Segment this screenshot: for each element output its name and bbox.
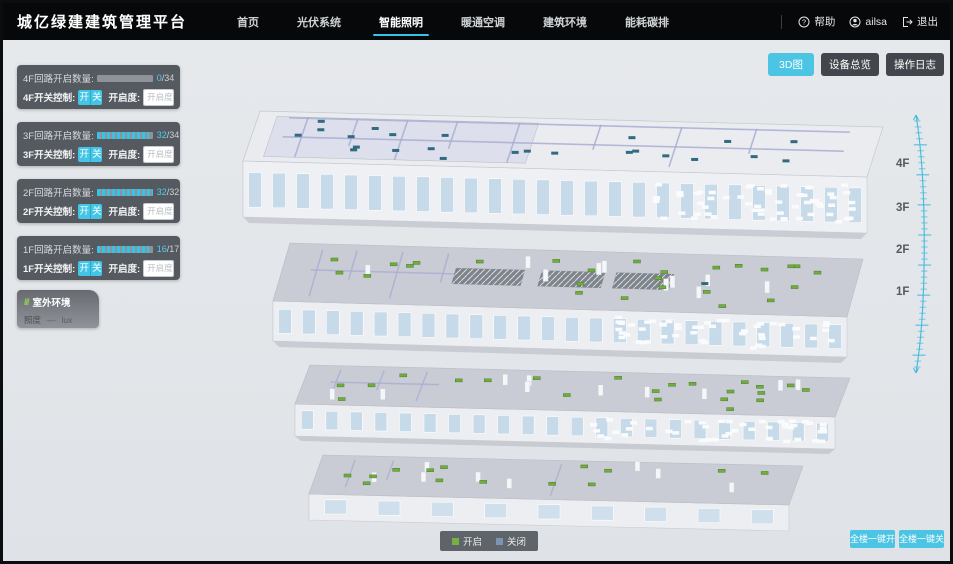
switch-on-button[interactable]: 开 [78,204,90,219]
help-button[interactable]: ? 帮助 [798,14,835,29]
header-right: ? 帮助 ailsa 退出 [781,14,950,29]
view-toolbar: 3D图 设备总览 操作日志 [768,53,944,76]
user-menu[interactable]: ailsa [849,16,887,28]
circuit-progress-bar [97,75,153,82]
circuit-count-label: 3F回路开启数量: [23,128,94,142]
circuit-count-label: 2F回路开启数量: [23,185,94,199]
legend-off-swatch [496,538,503,545]
circuit-count-label: 1F回路开启数量: [23,242,94,256]
floor-3f-model[interactable] [273,243,863,357]
svg-text:?: ? [802,17,806,26]
nav-hvac[interactable]: 暖通空调 [459,8,507,36]
switch-control-label: 4F开关控制: [23,90,75,104]
status-legend: 开启 关闭 [440,531,538,551]
dim-label: 开启度: [108,90,140,104]
dim-input[interactable] [144,90,174,105]
switch-off-button[interactable]: 关 [90,204,102,219]
switch-control-label: 2F开关控制: [23,204,75,218]
nav-smart-lighting[interactable]: 智能照明 [377,8,425,36]
legend-off-label: 关闭 [507,534,526,548]
outdoor-env-title: 室外环境 [33,295,71,309]
dim-input[interactable] [144,204,174,219]
logout-label: 退出 [917,14,938,29]
building-3d-view[interactable] [215,65,915,535]
view-3d-button[interactable]: 3D图 [768,53,814,76]
dim-input[interactable] [144,147,174,162]
legend-on-swatch [452,538,459,545]
switch-control-label: 3F开关控制: [23,147,75,161]
floor-panel-2f: 2F回路开启数量: 32/32 2F开关控制: 开 关 开启度: % [17,179,180,223]
switch-on-button[interactable]: 开 [78,90,90,105]
logout-button[interactable]: 退出 [901,14,938,29]
floor-2f-model[interactable] [295,365,850,449]
illuminance-unit: lux [62,315,73,325]
header: 城亿绿建建筑管理平台 首页 光伏系统 智能照明 暖通空调 建筑环境 能耗碳排 ?… [3,3,950,40]
device-overview-button[interactable]: 设备总览 [821,53,879,76]
circuit-progress-bar [97,132,153,139]
switch-on-button[interactable]: 开 [78,147,90,162]
app-window: 城亿绿建建筑管理平台 首页 光伏系统 智能照明 暖通空调 建筑环境 能耗碳排 ?… [0,0,953,564]
floor-panel-4f: 4F回路开启数量: 0/34 4F开关控制: 开 关 开启度: % [17,65,180,109]
circuit-count-label: 4F回路开启数量: [23,71,94,85]
switch-off-button[interactable]: 关 [90,90,102,105]
dim-label: 开启度: [108,261,140,275]
circuit-count-value: 32/32 [157,187,180,197]
legend-on: 开启 [452,534,482,548]
nav-pv-system[interactable]: 光伏系统 [295,8,343,36]
switch-control-label: 1F开关控制: [23,261,75,275]
help-icon: ? [798,16,810,28]
logout-icon [901,16,913,28]
outdoor-env-panel: /// 室外环境 照度 — lux [17,290,99,328]
floor-panel-3f: 3F回路开启数量: 32/34 3F开关控制: 开 关 开启度: % [17,122,180,166]
dim-input[interactable] [144,261,174,276]
nav-energy-carbon[interactable]: 能耗碳排 [623,8,671,36]
legend-on-label: 开启 [463,534,482,548]
main-nav: 首页 光伏系统 智能照明 暖通空调 建筑环境 能耗碳排 [235,8,671,36]
user-avatar-icon [849,16,861,28]
circuit-count-value: 16/17 [157,244,180,254]
nav-home[interactable]: 首页 [235,8,261,36]
header-divider [781,15,782,29]
floor-1f-model[interactable] [309,455,803,531]
outdoor-env-icon: /// [24,297,29,307]
operation-log-button[interactable]: 操作日志 [886,53,944,76]
switch-off-button[interactable]: 关 [90,261,102,276]
main-canvas: 3D图 设备总览 操作日志 4F回路开启数量: 0/34 4F开关控制: 开 关… [3,40,950,561]
legend-off: 关闭 [496,534,526,548]
dim-label: 开启度: [108,204,140,218]
circuit-count-value: 32/34 [157,130,180,140]
all-on-button[interactable]: 全楼一键开 [850,530,895,548]
illuminance-value: — [47,315,56,325]
username: ailsa [865,16,887,28]
nav-building-env[interactable]: 建筑环境 [541,8,589,36]
bulk-controls: 全楼一键开 全楼一键关 [850,530,944,548]
all-off-button[interactable]: 全楼一键关 [899,530,944,548]
circuit-progress-bar [97,246,153,253]
app-title: 城亿绿建建筑管理平台 [17,11,187,32]
floor-4f-model[interactable] [243,111,883,233]
floor-ruler-slider[interactable] [902,111,936,377]
illuminance-label: 照度 [24,314,41,326]
circuit-progress-bar [97,189,153,196]
help-label: 帮助 [814,14,835,29]
dim-label: 开启度: [108,147,140,161]
circuit-count-value: 0/34 [157,73,175,83]
switch-on-button[interactable]: 开 [78,261,90,276]
floor-panel-1f: 1F回路开启数量: 16/17 1F开关控制: 开 关 开启度: % [17,236,180,280]
switch-off-button[interactable]: 关 [90,147,102,162]
